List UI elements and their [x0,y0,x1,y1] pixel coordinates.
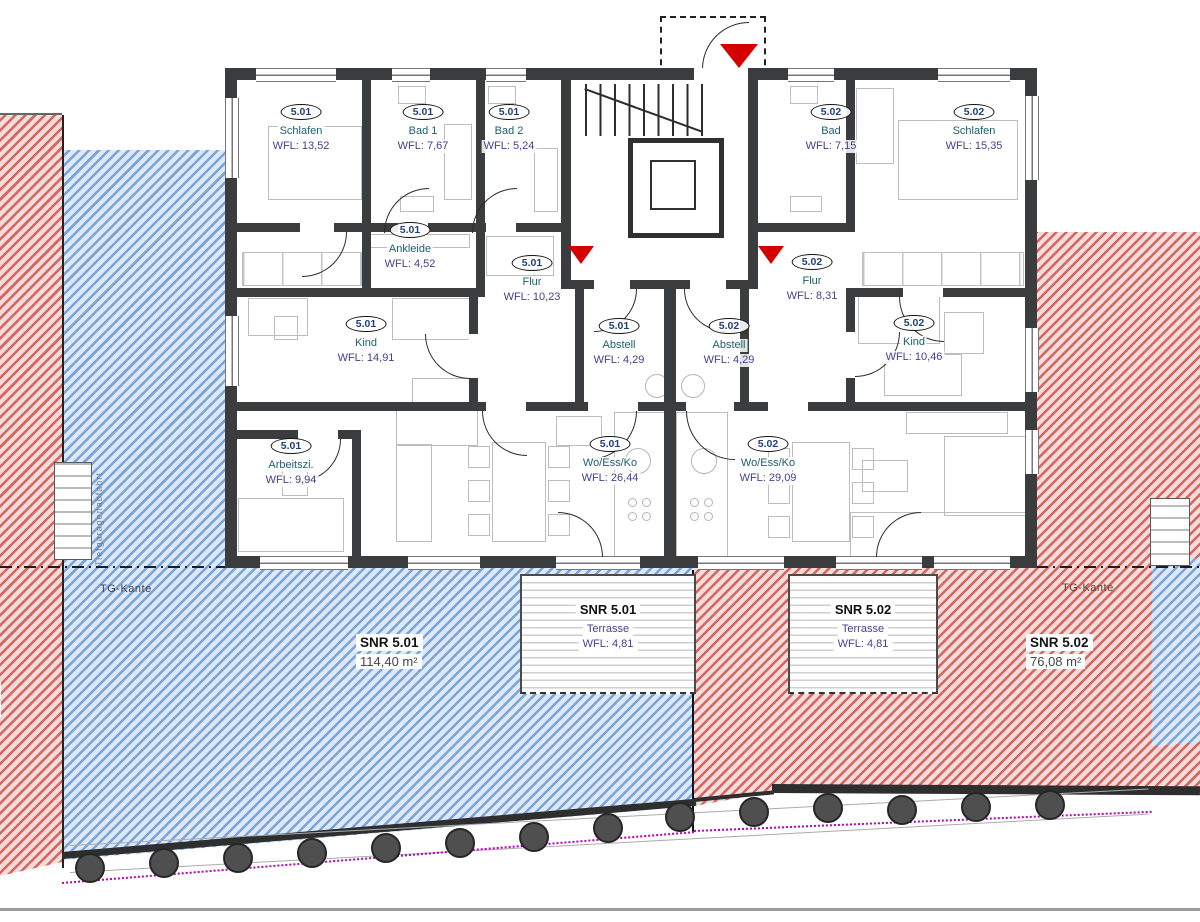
room-area: WFL: 29,09 [738,472,799,485]
room-name: Schlafen [951,125,998,138]
room-label-wohnen-502: 5.02 Wo/Ess/Ko WFL: 29,09 [738,436,799,485]
door-opening [690,280,726,289]
wall [561,280,758,289]
furniture [862,460,908,492]
chair [548,480,570,502]
unit-badge: 5.02 [894,315,934,331]
terrace-door [556,556,640,570]
room-area: WFL: 10,46 [884,351,945,364]
wall [362,68,371,297]
door-opening [686,402,734,411]
appliance [681,374,705,398]
terrace-area: WFL: 4,81 [579,638,638,651]
room-area: WFL: 7,67 [396,140,451,153]
furniture [856,88,894,164]
window [225,98,239,178]
window [788,68,834,82]
door-opening [846,332,855,378]
tg-kante-line-right [1036,566,1200,568]
room-label-abstell-501: 5.01 Abstell WFL: 4,29 [592,318,647,367]
chair [468,446,490,468]
room-area: WFL: 14,91 [336,352,397,365]
hob-burner [642,498,651,507]
unit-badge: 5.01 [590,436,630,452]
boundary-pile [519,822,549,852]
hob-burner [704,498,713,507]
terrace-501: SNR 5.01 Terrasse WFL: 4,81 [520,574,696,694]
unit-badge: 5.01 [390,222,430,238]
room-label-flur-501: 5.01 Flur WFL: 10,23 [502,255,563,304]
door-opening [588,402,638,411]
room-name: Arbeitszi. [266,459,315,472]
unit-badge: 5.01 [599,318,639,334]
room-label-abstell-502: 5.02 Abstell WFL: 4,29 [702,318,757,367]
room-area: WFL: 26,44 [580,472,641,485]
boundary-pile [887,795,917,825]
wall [748,68,758,289]
door-opening [486,402,526,411]
edge-size: m² [0,702,1,717]
site-bottom-line [0,908,1200,911]
room-area: WFL: 4,52 [383,258,438,271]
terrace-snr: SNR 5.01 [576,602,640,617]
room-label-kind-502: 5.02 Kind WFL: 10,46 [884,315,945,364]
elevator-car [650,160,696,210]
dining-table [492,442,546,542]
tg-kante-label-left: TG-Kante [100,583,152,595]
room-name: Ankleide [387,243,433,256]
room-name: Wo/Ess/Ko [739,457,797,470]
wall [756,223,855,232]
hob-burner [642,512,651,521]
window [1025,430,1039,474]
furniture [274,316,298,340]
light-shaft-right [1150,498,1190,566]
room-label-kind-501: 5.01 Kind WFL: 14,91 [336,316,397,365]
boundary-pile [75,853,105,883]
window [260,556,348,570]
furniture [398,86,426,104]
door-opening [903,288,943,297]
boundary-pile [961,792,991,822]
unit-area-chip-502: SNR 5.02 76,08 m² [1026,634,1093,671]
tg-kante-line-left [0,566,226,568]
boundary-pile [371,833,401,863]
hob-burner [704,512,713,521]
unit-snr: SNR 5.02 [1026,634,1093,651]
room-label-arbeitszimmer-501: 5.01 Arbeitszi. WFL: 9,94 [264,438,319,487]
terrace-snr: SNR 5.02 [831,602,895,617]
hob-burner [690,512,699,521]
room-name: Bad 2 [493,125,526,138]
room-name: Kind [901,336,927,349]
furniture [862,252,1024,286]
door-opening [300,223,334,232]
room-name: Bad 1 [407,125,440,138]
wall [352,430,361,556]
furniture [906,412,1008,434]
sofa [396,444,432,542]
door-opening [768,402,808,411]
unit-badge: 5.01 [403,104,443,120]
door-opening [694,68,748,80]
entrance-arrow [568,246,594,264]
door-opening [594,280,630,289]
boundary-pile [445,828,475,858]
wall [476,68,485,297]
chair [468,480,490,502]
terrace-area: WFL: 4,81 [834,638,893,651]
room-name: Flur [801,275,824,288]
furniture [488,86,516,104]
kitchen-counter [944,436,1030,516]
room-name: Flur [521,276,544,289]
room-label-bad1-501: 5.01 Bad 1 WFL: 7,67 [396,104,451,153]
window [938,68,1010,82]
unit-badge: 5.02 [709,318,749,334]
furniture [944,312,984,354]
room-label-bad2-501: 5.01 Bad 2 WFL: 5,24 [482,104,537,153]
room-area: WFL: 10,23 [502,291,563,304]
unit-badge: 5.02 [748,436,788,452]
hob-burner [628,498,637,507]
room-name: Bad [819,125,843,138]
room-name: Abstell [600,339,637,352]
unit-badge: 5.01 [281,104,321,120]
boundary-pile [223,843,253,873]
room-name: Schlafen [278,125,325,138]
furniture [412,378,472,404]
unit-badge: 5.01 [346,316,386,332]
wall [664,280,676,568]
ramp-note: Tiefgaragenabfahrt [94,432,104,566]
room-name: Abstell [710,339,747,352]
furniture [790,86,818,104]
window [256,68,336,82]
room-area: WFL: 15,35 [944,140,1005,153]
room-label-bad-502: 5.02 Bad WFL: 7,15 [804,104,859,153]
room-area: WFL: 13,52 [271,140,332,153]
window [225,316,239,386]
boundary-pile [149,848,179,878]
room-area: WFL: 7,15 [804,140,859,153]
chair [548,446,570,468]
chair [468,514,490,536]
room-area: WFL: 4,29 [592,354,647,367]
unit-area-chip-501: SNR 5.01 114,40 m² [356,634,423,671]
door-opening [469,334,478,378]
boundary-pile [739,797,769,827]
terrace-name: Terrasse [838,623,888,636]
chair [768,482,790,504]
window [1025,96,1039,180]
room-name: Wo/Ess/Ko [581,457,639,470]
furniture [534,148,558,212]
boundary-pile [813,793,843,823]
room-name: Kind [353,337,379,350]
edge-partial-chip: 02 m² [0,682,1,719]
window [486,68,526,82]
unit-badge: 5.01 [489,104,529,120]
unit-badge: 5.01 [512,255,552,271]
tg-kante-label-right: TG-Kante [1062,582,1114,594]
unit-badge: 5.01 [271,438,311,454]
desk [238,498,344,552]
hob-burner [690,498,699,507]
unit-snr: SNR 5.01 [356,634,423,651]
wall [575,289,584,411]
boundary-pile [665,802,695,832]
room-label-schlafen-502: 5.02 Schlafen WFL: 15,35 [944,104,1005,153]
room-label-schlafen-501: 5.01 Schlafen WFL: 13,52 [271,104,332,153]
unit-size: 76,08 m² [1026,654,1085,669]
unit-badge: 5.02 [954,104,994,120]
terrace-502: SNR 5.02 Terrasse WFL: 4,81 [788,574,938,694]
unit-badge: 5.02 [792,254,832,270]
room-area: WFL: 5,24 [482,140,537,153]
room-label-wohnen-501: 5.01 Wo/Ess/Ko WFL: 26,44 [580,436,641,485]
furniture [790,196,822,212]
unit-size: 114,40 m² [356,654,422,669]
entrance-arrow [720,44,758,68]
terrace-name: Terrasse [583,623,633,636]
window [1025,328,1039,392]
window [392,68,430,82]
sofa [396,410,478,446]
boundary-pile [1035,790,1065,820]
edge-label: 02 [0,682,1,699]
site-top-edge-line [0,113,62,115]
room-label-flur-502: 5.02 Flur WFL: 8,31 [785,254,840,303]
window [934,556,1010,570]
terrace-door [836,556,922,570]
wall [225,288,478,297]
room-area: WFL: 9,94 [264,474,319,487]
room-area: WFL: 4,29 [702,354,757,367]
window [408,556,480,570]
window [698,556,784,570]
wall [225,68,1037,80]
boundary-pile [297,838,327,868]
dining-table [792,442,850,542]
floorplan-canvas: TG-Kante TG-Kante Tiefgaragenabfahrt SNR… [0,0,1200,922]
entrance-arrow [758,246,784,264]
chair [768,516,790,538]
hob-burner [628,512,637,521]
boundary-pile [593,813,623,843]
room-area: WFL: 8,31 [785,290,840,303]
unit-badge: 5.02 [811,104,851,120]
room-label-ankleide-501: 5.01 Ankleide WFL: 4,52 [383,222,438,271]
light-shaft-left [54,462,92,560]
